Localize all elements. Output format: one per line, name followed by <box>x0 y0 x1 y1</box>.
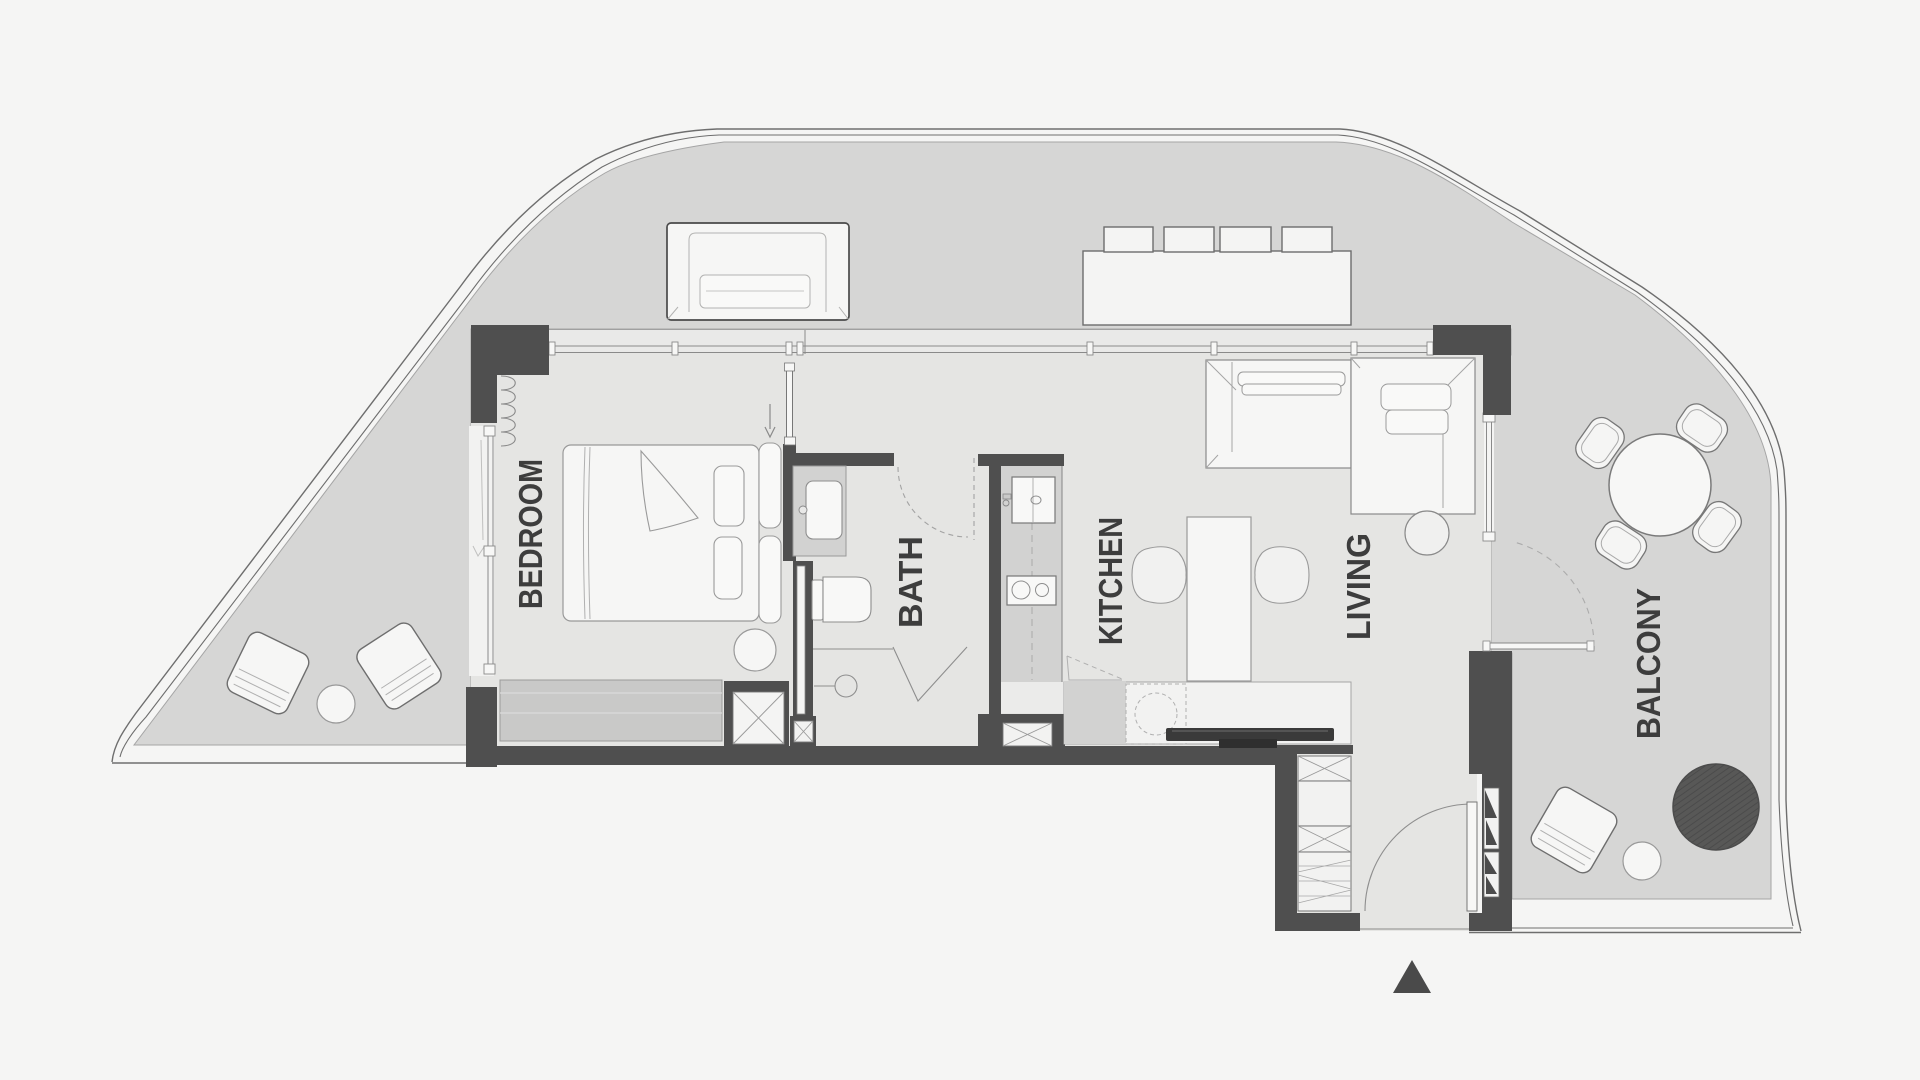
svg-text:BALCONY: BALCONY <box>1630 588 1667 739</box>
svg-text:BEDROOM: BEDROOM <box>512 459 549 609</box>
svg-text:LIVING: LIVING <box>1340 533 1377 640</box>
svg-text:KITCHEN: KITCHEN <box>1092 517 1129 645</box>
svg-text:BATH: BATH <box>892 536 929 628</box>
